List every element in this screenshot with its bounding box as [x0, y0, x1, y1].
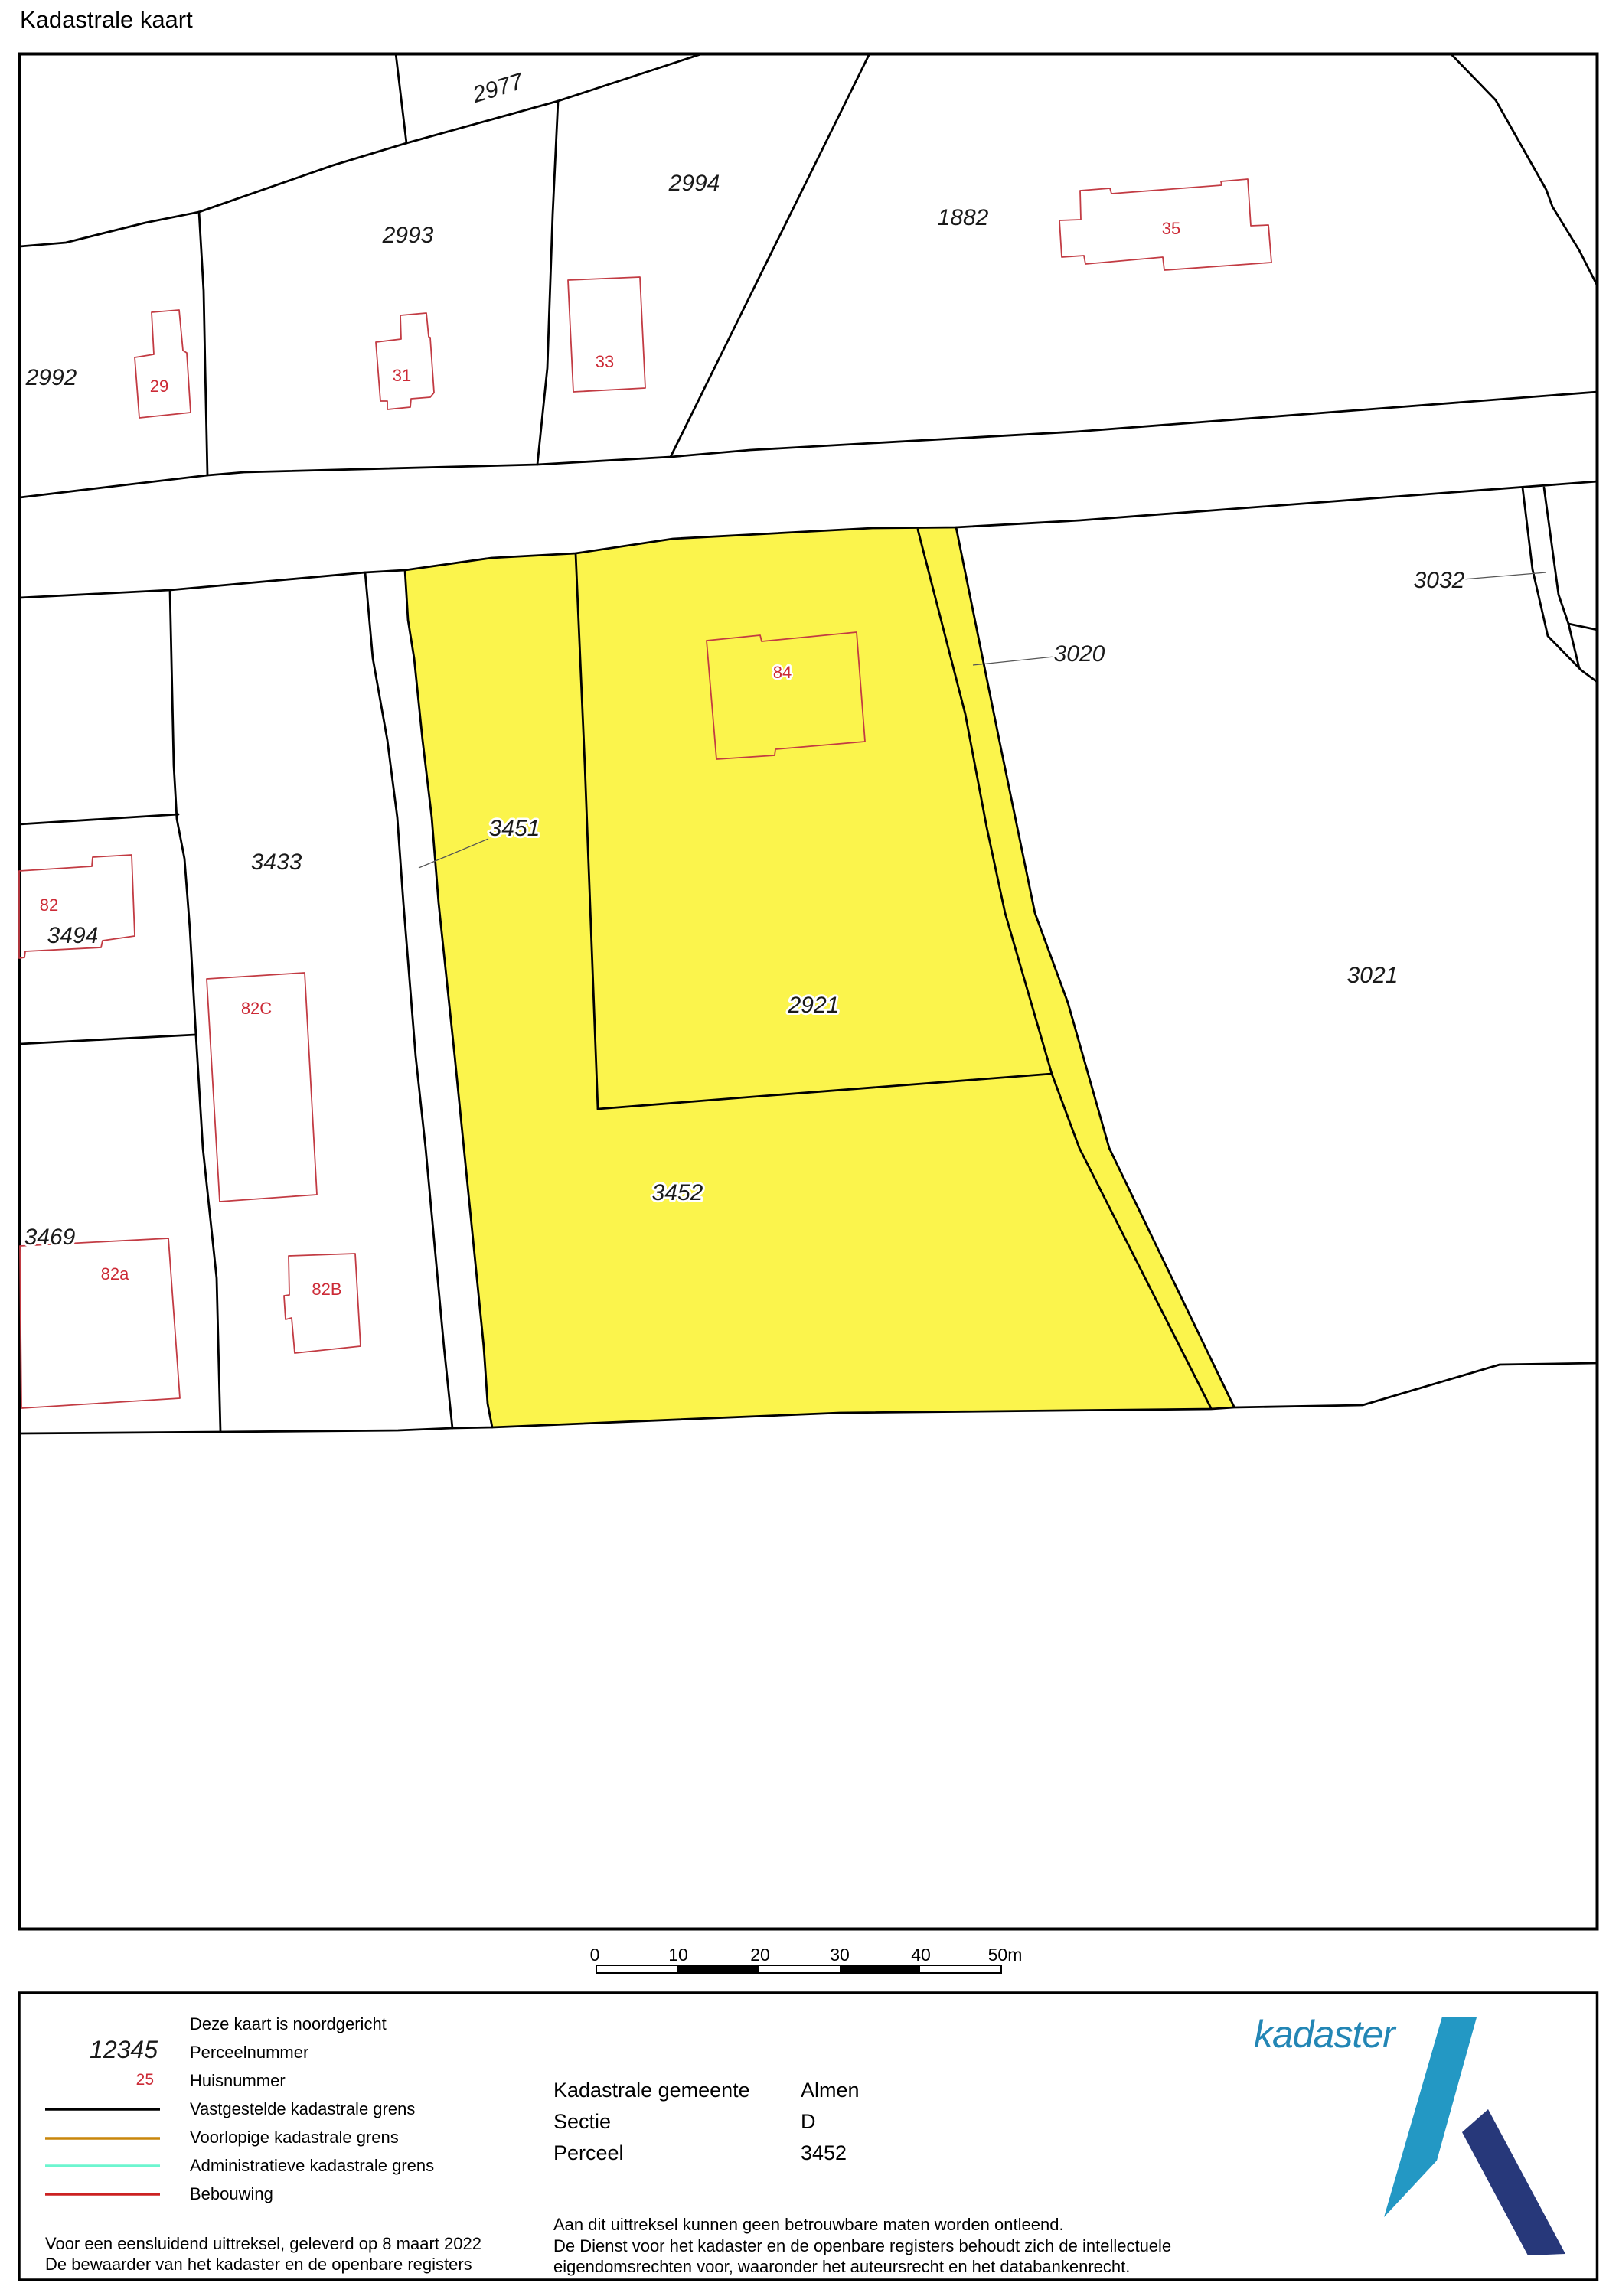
- svg-text:84: 84: [773, 663, 792, 682]
- svg-text:Perceelnummer: Perceelnummer: [190, 2043, 308, 2062]
- svg-text:82C: 82C: [241, 999, 272, 1018]
- svg-text:3020: 3020: [1054, 641, 1105, 667]
- svg-text:D: D: [801, 2110, 816, 2133]
- svg-text:29: 29: [150, 377, 168, 396]
- svg-text:2992: 2992: [25, 365, 77, 390]
- svg-text:Sectie: Sectie: [553, 2110, 611, 2133]
- svg-text:3452: 3452: [652, 1180, 703, 1205]
- svg-text:30: 30: [830, 1945, 850, 1965]
- svg-text:Perceel: Perceel: [553, 2141, 624, 2164]
- svg-text:12345: 12345: [90, 2036, 158, 2063]
- svg-text:3032: 3032: [1414, 568, 1465, 593]
- svg-text:40: 40: [911, 1945, 931, 1965]
- svg-text:Administratieve kadastrale gre: Administratieve kadastrale grens: [190, 2156, 434, 2175]
- svg-text:20: 20: [750, 1945, 770, 1965]
- svg-text:Huisnummer: Huisnummer: [190, 2071, 286, 2090]
- svg-text:82: 82: [40, 895, 58, 915]
- svg-text:Kadastrale kaart: Kadastrale kaart: [20, 6, 193, 33]
- svg-text:2993: 2993: [382, 223, 434, 248]
- svg-text:0: 0: [590, 1945, 600, 1965]
- svg-text:2994: 2994: [668, 171, 720, 196]
- svg-text:Vastgestelde kadastrale grens: Vastgestelde kadastrale grens: [190, 2099, 415, 2118]
- svg-text:3433: 3433: [251, 850, 302, 875]
- svg-text:33: 33: [596, 352, 614, 371]
- svg-text:De bewaarder van het kadaster: De bewaarder van het kadaster en de open…: [45, 2255, 472, 2274]
- svg-text:50m: 50m: [988, 1945, 1023, 1965]
- svg-text:3452: 3452: [801, 2141, 847, 2164]
- svg-text:82a: 82a: [101, 1264, 129, 1283]
- svg-text:3021: 3021: [1347, 963, 1399, 988]
- svg-text:3494: 3494: [47, 923, 99, 948]
- svg-text:De Dienst voor het kadaster en: De Dienst voor het kadaster en de openba…: [553, 2236, 1171, 2255]
- svg-text:Deze kaart is noordgericht: Deze kaart is noordgericht: [190, 2014, 387, 2033]
- svg-text:3451: 3451: [489, 816, 540, 841]
- svg-text:kadaster: kadaster: [1254, 2013, 1397, 2056]
- svg-text:2921: 2921: [788, 993, 840, 1018]
- svg-text:82B: 82B: [312, 1280, 341, 1299]
- svg-text:10: 10: [668, 1945, 688, 1965]
- svg-text:Voor een eensluidend uittrekse: Voor een eensluidend uittreksel, gelever…: [45, 2234, 481, 2253]
- svg-text:1882: 1882: [938, 205, 989, 230]
- svg-text:Voorlopige kadastrale grens: Voorlopige kadastrale grens: [190, 2128, 399, 2147]
- svg-text:Kadastrale gemeente: Kadastrale gemeente: [553, 2079, 750, 2102]
- svg-text:31: 31: [393, 366, 411, 385]
- svg-text:35: 35: [1162, 219, 1180, 238]
- svg-text:Almen: Almen: [801, 2079, 860, 2102]
- svg-text:3469: 3469: [24, 1225, 76, 1250]
- svg-text:Aan dit uittreksel kunnen geen: Aan dit uittreksel kunnen geen betrouwba…: [553, 2215, 1064, 2234]
- svg-text:Bebouwing: Bebouwing: [190, 2184, 273, 2203]
- svg-text:eigendomsrechten voor, waarond: eigendomsrechten voor, waaronder het aut…: [553, 2257, 1130, 2276]
- svg-text:25: 25: [136, 2071, 154, 2089]
